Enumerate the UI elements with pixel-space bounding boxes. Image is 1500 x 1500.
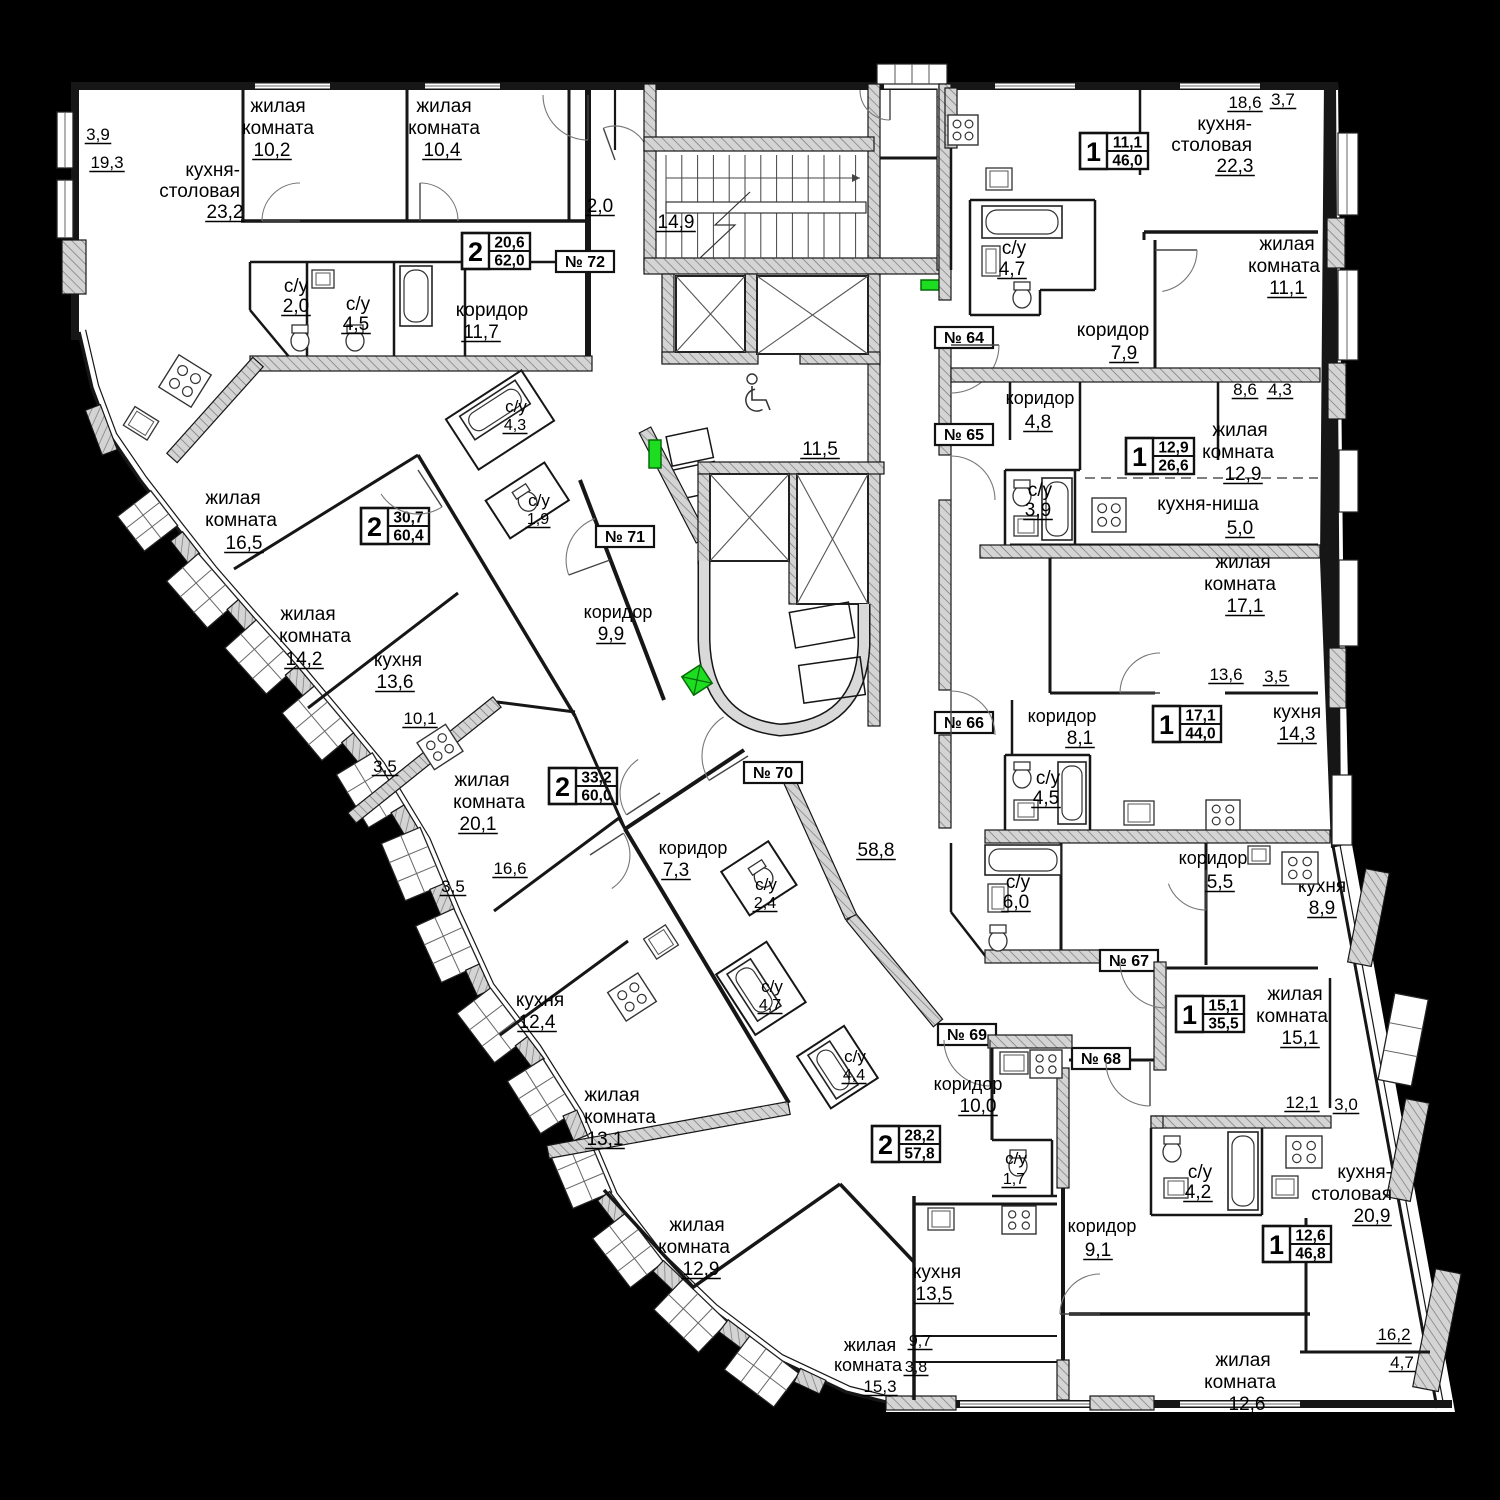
- svg-text:8,1: 8,1: [1067, 728, 1093, 749]
- svg-text:4,4: 4,4: [843, 1067, 865, 1084]
- svg-text:с/у: с/у: [1002, 238, 1027, 259]
- svg-text:с/у: с/у: [761, 977, 783, 996]
- svg-text:столовая: столовая: [1171, 135, 1252, 156]
- svg-text:4,3: 4,3: [504, 417, 526, 434]
- svg-text:17,1: 17,1: [1185, 708, 1216, 725]
- svg-text:4,2: 4,2: [1185, 1182, 1211, 1203]
- svg-text:жилая: жилая: [454, 770, 509, 791]
- svg-text:2: 2: [468, 237, 483, 267]
- svg-text:комната: комната: [1256, 1006, 1328, 1027]
- svg-text:13,6: 13,6: [377, 672, 414, 693]
- svg-text:комната: комната: [584, 1107, 656, 1128]
- svg-text:35,5: 35,5: [1208, 1016, 1239, 1033]
- svg-text:1: 1: [1269, 1230, 1284, 1260]
- svg-text:3,7: 3,7: [1271, 90, 1295, 109]
- svg-text:с/у: с/у: [1036, 768, 1061, 789]
- svg-text:жилая: жилая: [250, 96, 305, 117]
- svg-text:кухня-: кухня-: [1197, 114, 1252, 135]
- svg-text:4,7: 4,7: [1390, 1353, 1414, 1372]
- svg-text:с/у: с/у: [346, 294, 371, 315]
- svg-text:жилая: жилая: [1215, 1350, 1270, 1371]
- svg-text:44,0: 44,0: [1185, 726, 1215, 743]
- svg-text:3,9: 3,9: [1025, 500, 1051, 521]
- svg-text:9,7: 9,7: [909, 1333, 931, 1350]
- svg-text:4,5: 4,5: [1033, 788, 1059, 809]
- svg-text:14,9: 14,9: [658, 212, 695, 233]
- svg-text:18,6: 18,6: [1228, 93, 1261, 112]
- svg-text:1,7: 1,7: [1003, 1171, 1025, 1188]
- svg-text:жилая: жилая: [669, 1215, 724, 1236]
- svg-text:комната: комната: [658, 1237, 730, 1258]
- svg-text:10,0: 10,0: [960, 1096, 997, 1117]
- svg-text:13,6: 13,6: [1209, 665, 1242, 684]
- svg-text:коридор: коридор: [584, 602, 653, 622]
- svg-text:3,0: 3,0: [1334, 1095, 1358, 1114]
- svg-text:комната: комната: [453, 792, 525, 813]
- svg-text:кухня: кухня: [516, 990, 564, 1011]
- svg-text:12,6: 12,6: [1229, 1394, 1266, 1415]
- svg-text:3,5: 3,5: [373, 757, 397, 776]
- svg-text:№ 66: № 66: [944, 715, 984, 732]
- svg-text:№ 69: № 69: [947, 1027, 987, 1044]
- svg-text:комната: комната: [1204, 574, 1276, 595]
- svg-text:с/у: с/у: [284, 276, 309, 297]
- svg-text:№ 70: № 70: [753, 765, 793, 782]
- svg-text:11,1: 11,1: [1113, 135, 1143, 152]
- svg-text:с/у: с/у: [1005, 1149, 1027, 1168]
- svg-text:58,8: 58,8: [858, 840, 895, 861]
- svg-text:28,2: 28,2: [904, 1128, 934, 1145]
- svg-text:26,6: 26,6: [1158, 458, 1189, 475]
- svg-text:жилая: жилая: [280, 604, 335, 625]
- svg-text:жилая: жилая: [844, 1335, 896, 1355]
- svg-text:3,9: 3,9: [86, 125, 110, 144]
- svg-text:6,0: 6,0: [1003, 892, 1029, 913]
- svg-text:11,5: 11,5: [802, 439, 838, 460]
- svg-text:коридор: коридор: [1077, 320, 1150, 341]
- svg-text:комната: комната: [1204, 1372, 1276, 1393]
- svg-text:коридор: коридор: [456, 300, 529, 321]
- svg-text:кухня: кухня: [374, 650, 422, 671]
- svg-text:комната: комната: [242, 118, 314, 139]
- svg-text:15,1: 15,1: [1208, 998, 1239, 1015]
- svg-text:4,7: 4,7: [759, 997, 781, 1014]
- svg-text:жилая: жилая: [1215, 552, 1270, 573]
- svg-text:16,2: 16,2: [1377, 1325, 1410, 1344]
- svg-text:8,6: 8,6: [1233, 380, 1257, 399]
- svg-text:жилая: жилая: [1259, 234, 1314, 255]
- svg-text:23,2: 23,2: [207, 202, 244, 223]
- svg-text:4,7: 4,7: [999, 259, 1025, 280]
- svg-text:№ 68: № 68: [1081, 1051, 1121, 1068]
- svg-text:9,1: 9,1: [1085, 1240, 1111, 1261]
- svg-text:с/у: с/у: [1006, 872, 1031, 893]
- svg-text:30,7: 30,7: [393, 510, 423, 527]
- svg-text:комната: комната: [408, 118, 480, 139]
- svg-text:комната: комната: [1202, 442, 1274, 463]
- svg-text:7,9: 7,9: [1111, 343, 1137, 364]
- svg-text:22,3: 22,3: [1217, 156, 1254, 177]
- svg-text:1: 1: [1086, 137, 1101, 167]
- svg-text:14,2: 14,2: [286, 649, 323, 670]
- svg-text:коридор: коридор: [934, 1074, 1003, 1094]
- svg-text:19,3: 19,3: [90, 153, 123, 172]
- svg-text:16,5: 16,5: [226, 533, 263, 554]
- svg-text:20,1: 20,1: [460, 814, 497, 835]
- svg-text:7,3: 7,3: [663, 860, 689, 881]
- svg-text:16,6: 16,6: [493, 859, 526, 878]
- svg-text:коридор: коридор: [659, 838, 728, 858]
- svg-text:столовая: столовая: [1311, 1184, 1392, 1205]
- svg-text:60,4: 60,4: [393, 528, 424, 545]
- svg-text:33,2: 33,2: [581, 770, 611, 787]
- svg-text:кухня: кухня: [913, 1262, 961, 1283]
- svg-text:20,6: 20,6: [494, 235, 525, 252]
- svg-text:8,9: 8,9: [1309, 898, 1335, 919]
- svg-text:жилая: жилая: [205, 488, 260, 509]
- svg-text:20,9: 20,9: [1354, 1206, 1391, 1227]
- svg-text:13,5: 13,5: [916, 1284, 953, 1305]
- svg-text:жилая: жилая: [1212, 420, 1267, 441]
- svg-text:кухня-: кухня-: [185, 160, 240, 181]
- svg-text:2,0: 2,0: [587, 196, 613, 217]
- svg-text:№ 72: № 72: [565, 254, 605, 271]
- svg-text:комната: комната: [834, 1355, 903, 1375]
- svg-text:3,8: 3,8: [905, 1359, 927, 1376]
- svg-text:15,1: 15,1: [1282, 1028, 1319, 1049]
- svg-text:12,6: 12,6: [1295, 1228, 1326, 1245]
- svg-text:57,8: 57,8: [904, 1146, 935, 1163]
- svg-text:с/у: с/у: [505, 397, 527, 416]
- svg-text:2: 2: [367, 512, 382, 542]
- svg-text:4,8: 4,8: [1025, 412, 1051, 433]
- svg-text:с/у: с/у: [1188, 1162, 1213, 1183]
- svg-text:с/у: с/у: [528, 491, 550, 510]
- svg-text:10,2: 10,2: [254, 140, 291, 161]
- svg-text:1: 1: [1159, 710, 1174, 740]
- svg-text:кухня: кухня: [1273, 702, 1321, 723]
- svg-text:17,1: 17,1: [1227, 596, 1264, 617]
- svg-text:1: 1: [1182, 1000, 1197, 1030]
- svg-text:№ 71: № 71: [605, 529, 645, 546]
- svg-text:№ 67: № 67: [1109, 953, 1149, 970]
- svg-text:5,0: 5,0: [1227, 518, 1253, 539]
- svg-text:2,4: 2,4: [754, 895, 776, 912]
- svg-text:с/у: с/у: [1028, 480, 1053, 501]
- svg-text:с/у: с/у: [844, 1047, 866, 1066]
- svg-text:5,5: 5,5: [1207, 872, 1233, 893]
- svg-text:коридор: коридор: [1068, 1216, 1137, 1236]
- svg-text:коридор: коридор: [1028, 706, 1097, 726]
- svg-text:13,1: 13,1: [587, 1129, 624, 1150]
- svg-text:10,4: 10,4: [424, 140, 461, 161]
- svg-text:46,8: 46,8: [1295, 1246, 1326, 1263]
- svg-text:12,1: 12,1: [1285, 1093, 1318, 1112]
- svg-text:кухня-ниша: кухня-ниша: [1157, 494, 1259, 515]
- svg-text:с/у: с/у: [755, 875, 777, 894]
- svg-text:4,5: 4,5: [343, 314, 369, 335]
- svg-text:9,9: 9,9: [598, 624, 624, 645]
- svg-text:жилая: жилая: [584, 1085, 639, 1106]
- svg-text:46,0: 46,0: [1112, 153, 1142, 170]
- svg-text:3,5: 3,5: [441, 877, 465, 896]
- svg-text:10,1: 10,1: [403, 709, 436, 728]
- svg-text:жилая: жилая: [416, 96, 471, 117]
- svg-text:кухня-: кухня-: [1337, 1162, 1392, 1183]
- svg-text:12,9: 12,9: [1158, 440, 1189, 457]
- svg-text:11,7: 11,7: [463, 322, 499, 343]
- svg-text:2: 2: [878, 1130, 893, 1160]
- svg-text:комната: комната: [205, 510, 277, 531]
- svg-text:коридор: коридор: [1006, 388, 1075, 408]
- svg-text:комната: комната: [1248, 256, 1320, 277]
- svg-text:4,3: 4,3: [1268, 380, 1292, 399]
- svg-text:12,4: 12,4: [519, 1012, 556, 1033]
- svg-text:11,1: 11,1: [1269, 278, 1305, 299]
- svg-text:2: 2: [555, 772, 570, 802]
- svg-text:коридор: коридор: [1179, 848, 1248, 868]
- svg-text:комната: комната: [279, 626, 351, 647]
- svg-text:№ 65: № 65: [944, 427, 984, 444]
- svg-text:1: 1: [1132, 442, 1147, 472]
- svg-text:15,3: 15,3: [863, 1377, 896, 1396]
- svg-text:2,0: 2,0: [283, 296, 309, 317]
- svg-text:12,9: 12,9: [1225, 464, 1262, 485]
- svg-text:1,9: 1,9: [527, 511, 549, 528]
- svg-text:62,0: 62,0: [494, 253, 524, 270]
- svg-text:3,5: 3,5: [1264, 667, 1288, 686]
- svg-text:столовая: столовая: [159, 181, 240, 202]
- svg-text:14,3: 14,3: [1279, 724, 1316, 745]
- svg-text:жилая: жилая: [1267, 984, 1322, 1005]
- svg-text:12,9: 12,9: [683, 1259, 720, 1280]
